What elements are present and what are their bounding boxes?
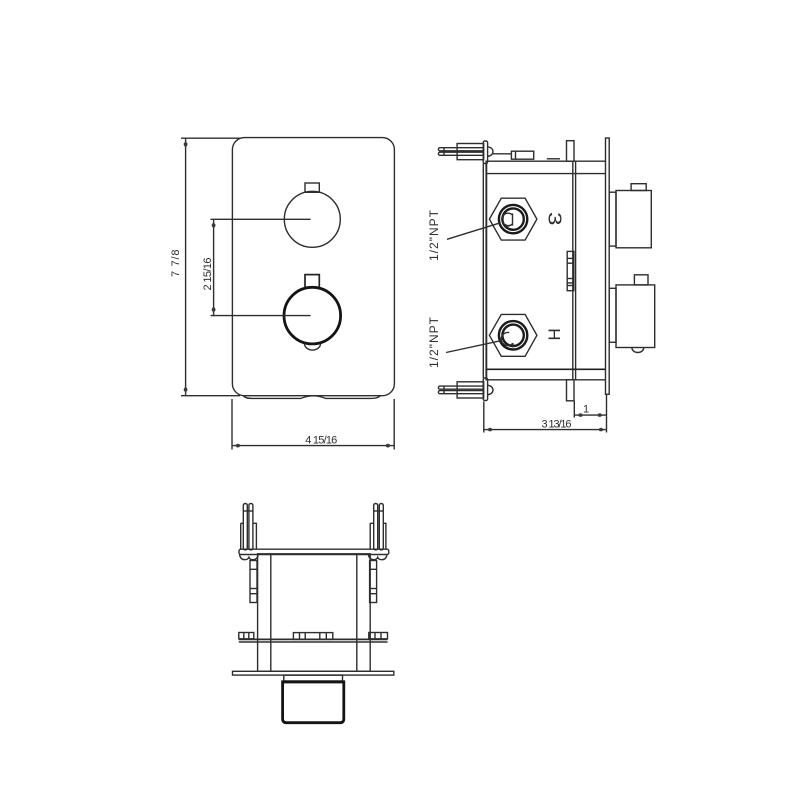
svg-text:3 13/16: 3 13/16 <box>542 418 572 430</box>
svg-text:1/2"NPT: 1/2"NPT <box>427 316 441 368</box>
svg-text:4 15/16: 4 15/16 <box>305 434 337 446</box>
svg-text:3: 3 <box>544 212 564 226</box>
svg-text:2 15/16: 2 15/16 <box>202 258 214 291</box>
svg-text:7 7/8: 7 7/8 <box>170 250 182 278</box>
svg-text:1/2"NPT: 1/2"NPT <box>427 209 441 261</box>
svg-text:1: 1 <box>583 403 589 415</box>
svg-text:H: H <box>544 328 563 340</box>
